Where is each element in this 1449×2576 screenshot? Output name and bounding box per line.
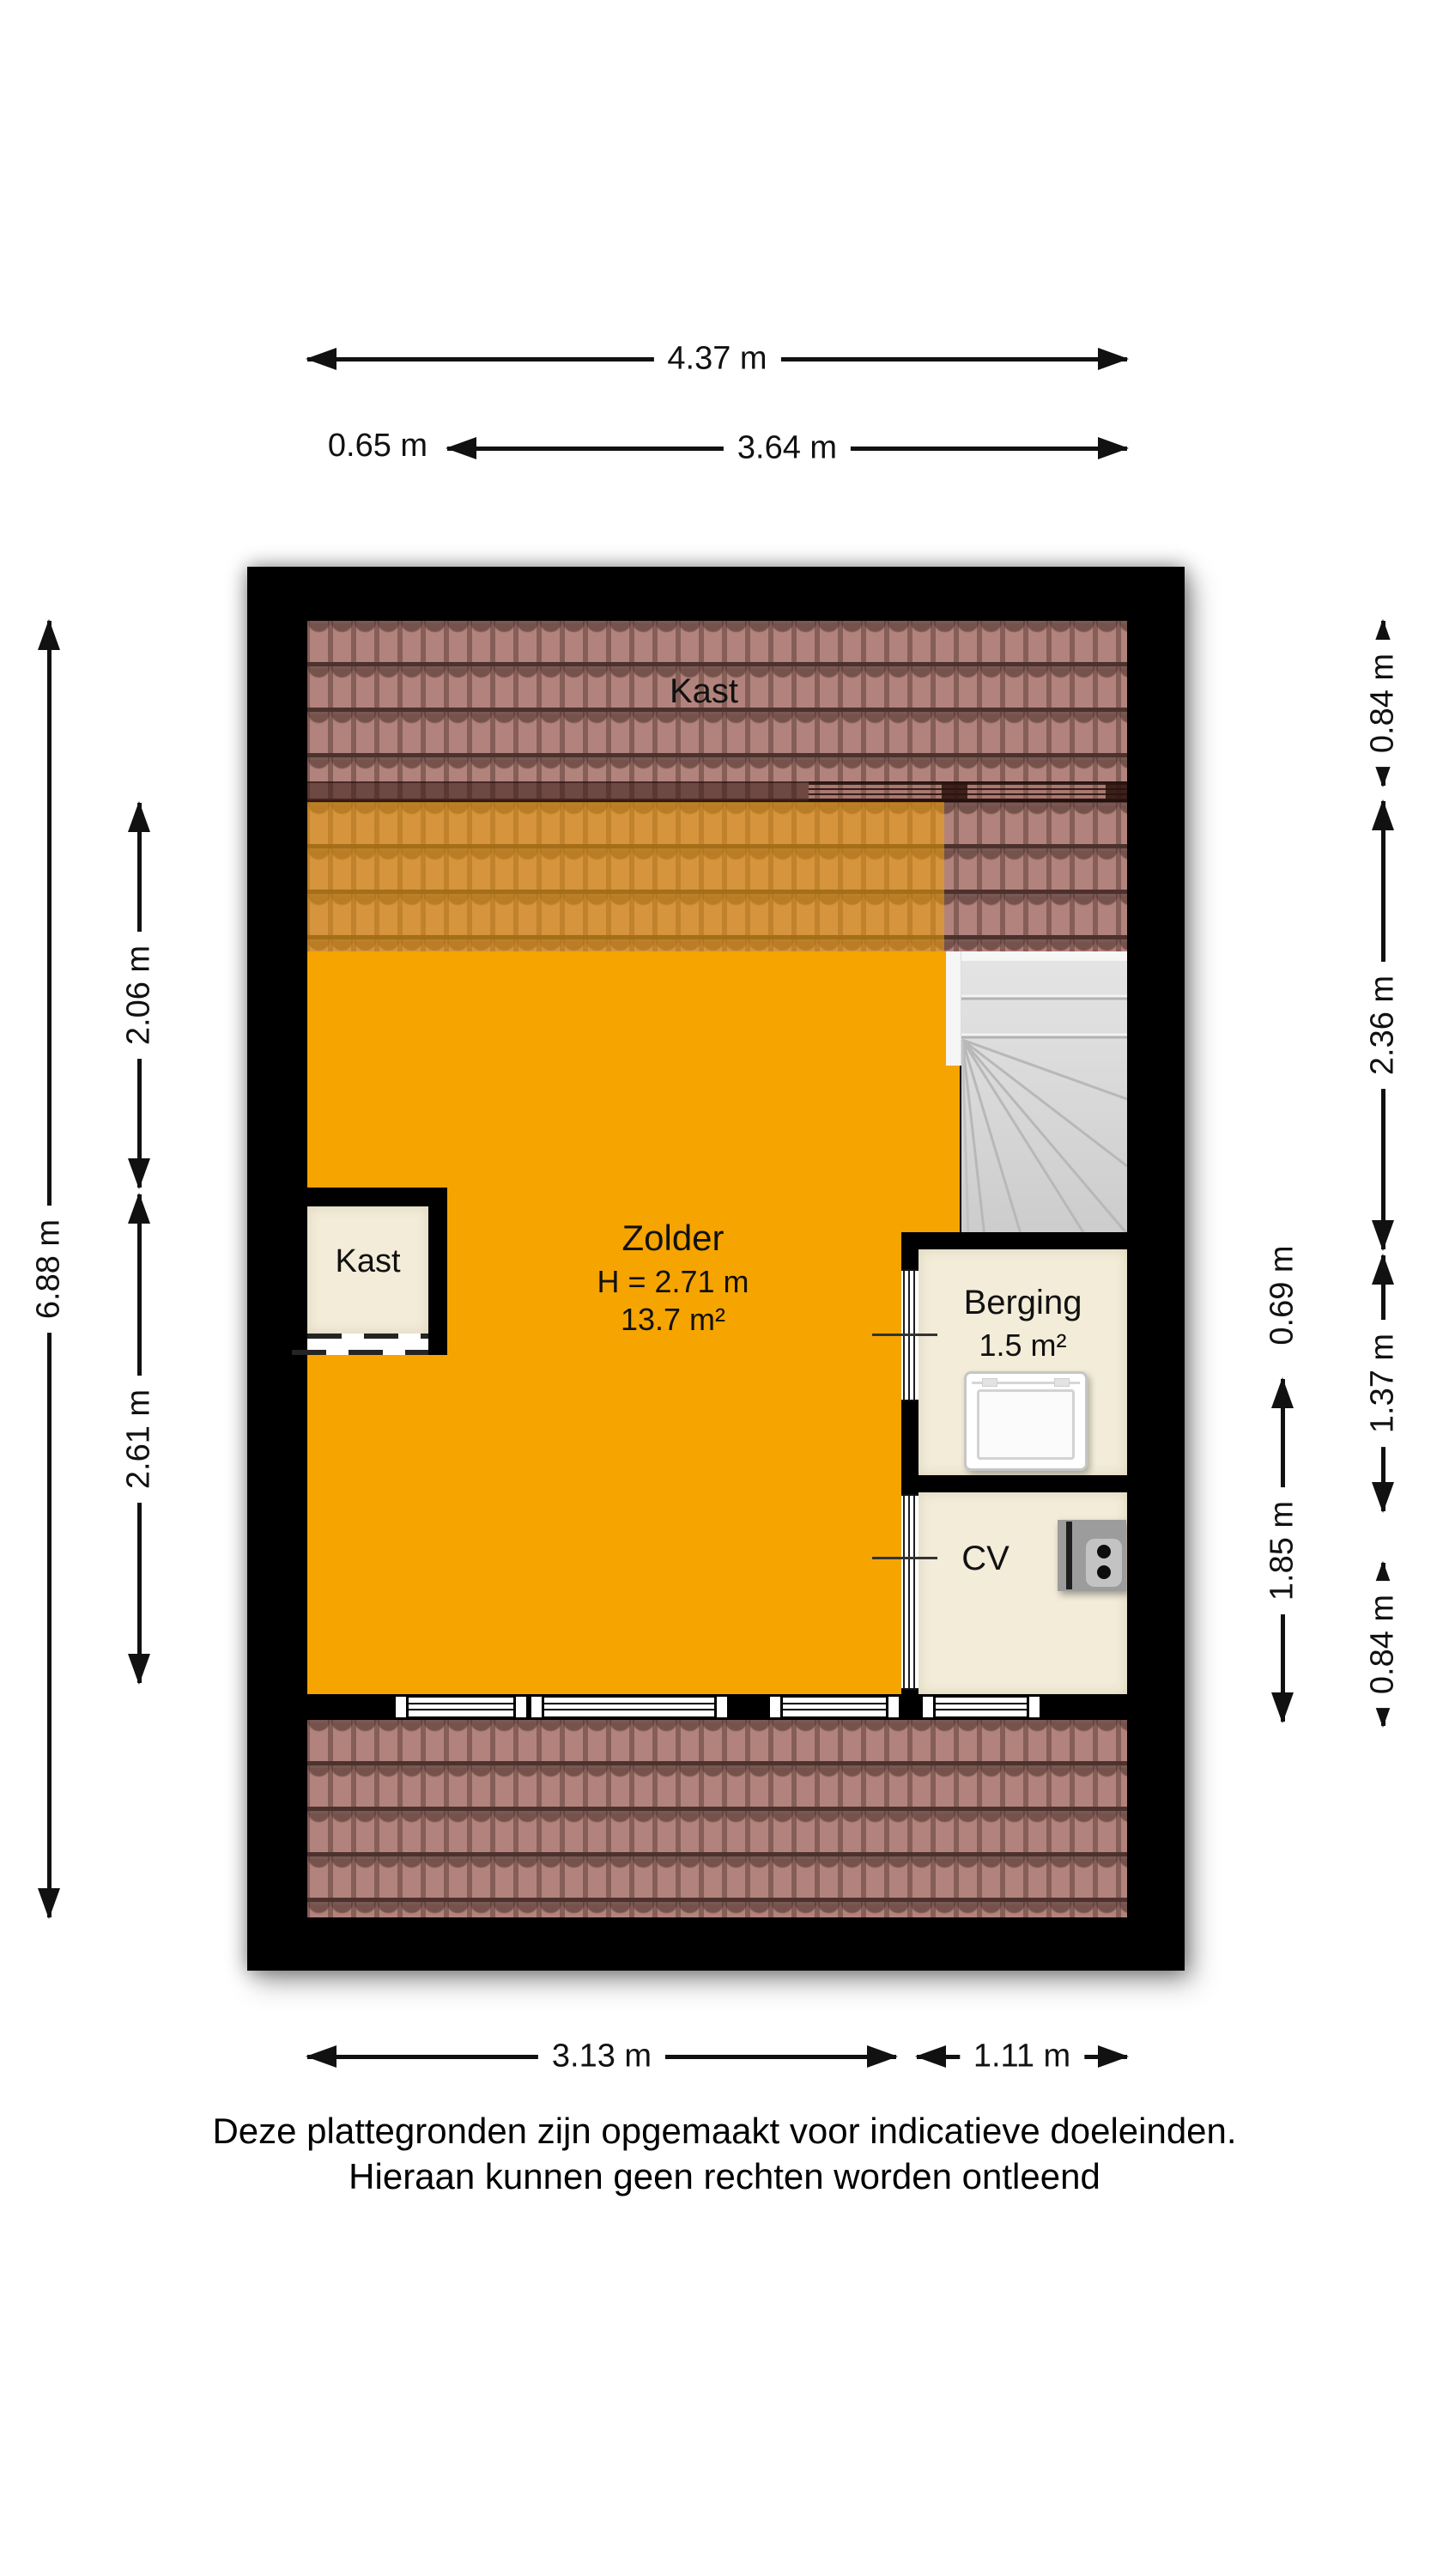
floorplan-page: 4.37 m 0.65 m 3.64 m [0,0,1449,2576]
berging-area: 1.5 m² [919,1327,1127,1364]
closet-wall-top [306,1188,447,1206]
window-post [513,1694,529,1720]
dim-top-overall: 4.37 m [307,340,1127,378]
dim-left-upper: 2.06 m [120,803,158,1188]
zolder-title: Zolder [544,1218,802,1259]
stairwell-side-wall [946,951,961,1066]
closet-open-front [307,1334,428,1355]
zolder-sloped-floor [307,802,944,951]
disclaimer-line1: Deze plattegronden zijn opgemaakt voor i… [0,2108,1449,2154]
room-label-zolder: Zolder H = 2.71 m 13.7 m² [544,1218,802,1338]
dim-label: 6.88 m [31,1206,68,1333]
window-marker-line [872,1557,937,1559]
arrow-right-icon [867,2045,898,2068]
front-window [409,1694,513,1720]
room-label-cv: CV [934,1540,1037,1578]
front-window [936,1694,1027,1720]
window-post [767,1694,783,1720]
arrow-down-icon [1372,1482,1394,1513]
dim-top-main: 3.64 m [447,429,1127,467]
knee-wall-band [307,781,809,802]
window-post [886,1694,901,1720]
arrow-down-icon [1271,1692,1294,1723]
arrow-down-icon [128,1158,150,1189]
dim-left-lower: 2.61 m [120,1194,158,1683]
railing-post [1106,783,1127,800]
zolder-area: 13.7 m² [544,1302,802,1338]
window-post [920,1694,936,1720]
dim-right-outer-top: 0.84 m [1364,621,1402,786]
window-post [1027,1694,1042,1720]
dim-bottom-right: 1.11 m [917,2038,1127,2075]
dim-left-overall: 6.88 m [30,621,68,1917]
front-window [544,1694,714,1720]
dim-label: 1.11 m [960,2038,1084,2075]
dim-label: 2.61 m [121,1375,158,1502]
disclaimer-line2: Hieraan kunnen geen rechten worden ontle… [0,2154,1449,2199]
staircase-icon [961,961,1127,1236]
dim-label: 0.84 m [1365,1581,1402,1708]
cv-window [901,1494,919,1690]
arrow-down-icon [38,1888,60,1919]
stair-railing [809,781,1127,802]
railing-post [942,783,967,800]
arrow-down-icon [128,1654,150,1685]
window-post [393,1694,409,1720]
knee-wall-front [730,1694,767,1720]
room-label-berging: Berging 1.5 m² [919,1284,1127,1364]
berging-cv-divider-wall [901,1475,1127,1492]
arrow-right-icon [1098,348,1129,370]
dim-label: 1.37 m [1365,1320,1402,1447]
arrow-right-icon [1098,437,1129,459]
knee-wall-front [901,1694,920,1720]
dim-label: 2.36 m [1365,962,1402,1089]
dim-label: 4.37 m [653,341,780,378]
zolder-height: H = 2.71 m [544,1264,802,1300]
dim-label: 1.85 m [1264,1486,1301,1613]
window-post [714,1694,730,1720]
dim-right-inner-lower: 1.85 m [1264,1379,1301,1722]
dim-label: 3.13 m [538,2038,665,2075]
attic-floor [946,1066,960,1236]
berging-title: Berging [919,1284,1127,1322]
disclaimer: Deze plattegronden zijn opgemaakt voor i… [0,2108,1449,2199]
arrow-down-icon [1372,1220,1394,1251]
dim-right-outer-upper: 2.36 m [1364,801,1402,1249]
roof-tiles-bottom [307,1720,1127,1917]
dim-bottom-left: 3.13 m [307,2038,896,2075]
closet-wall-right [428,1188,447,1355]
dim-label: 2.06 m [121,932,158,1059]
window-post [529,1694,544,1720]
room-label-kast-top: Kast [618,672,790,711]
dim-top-left-offset-label: 0.65 m [309,428,446,465]
front-window [783,1694,886,1720]
dim-label: 0.84 m [1365,640,1402,767]
washing-machine-icon [964,1371,1088,1471]
knee-wall-front [1042,1694,1127,1720]
attic-floor [901,951,946,1236]
cv-boiler-icon [1058,1520,1126,1591]
arrow-right-icon [1098,2045,1129,2068]
dim-right-outer-middle: 1.37 m [1364,1255,1402,1511]
berging-wall-top [901,1232,1127,1249]
dim-label: 3.64 m [724,430,851,467]
dim-right-inner-upper-label: 0.69 m [1264,1227,1301,1364]
dim-right-outer-bottom: 0.84 m [1364,1563,1402,1726]
room-label-kast-closet: Kast [307,1243,428,1280]
knee-wall-front [306,1694,393,1720]
